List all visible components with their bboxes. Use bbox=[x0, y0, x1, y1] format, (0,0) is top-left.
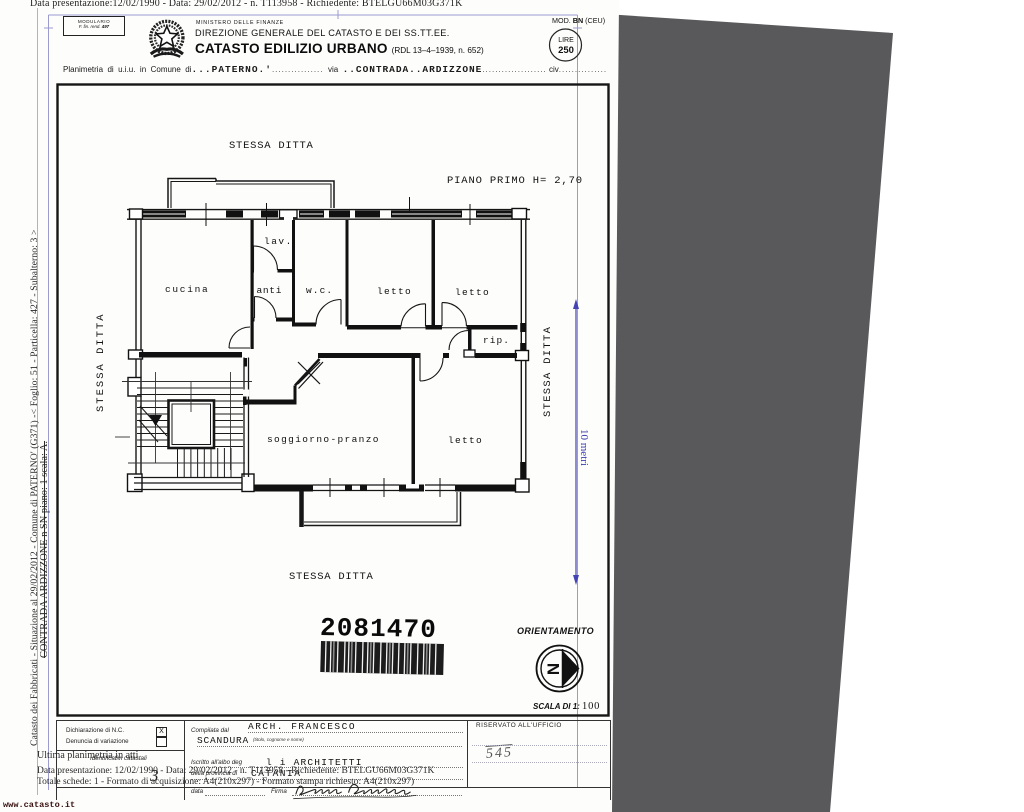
svg-text:N: N bbox=[544, 663, 563, 675]
